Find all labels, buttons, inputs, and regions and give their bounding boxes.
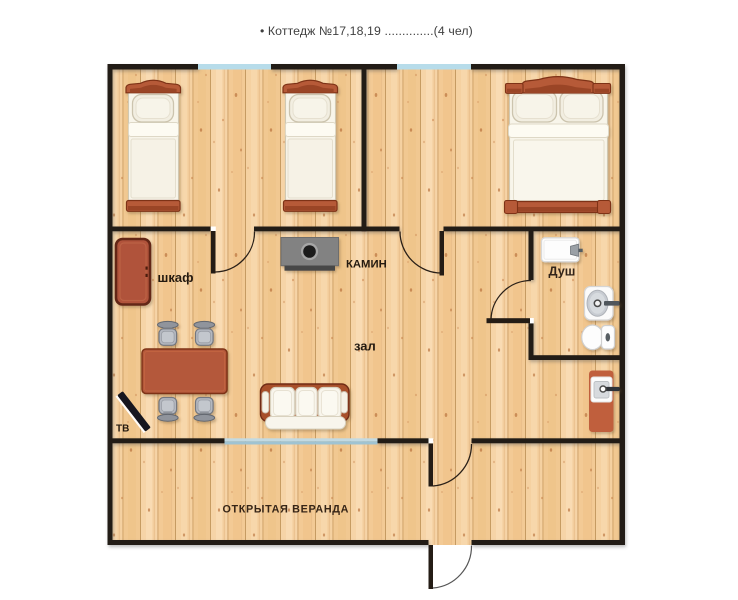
svg-text:КАМИН: КАМИН bbox=[346, 259, 387, 271]
svg-text:Душ: Душ bbox=[549, 265, 576, 279]
svg-text:ТВ: ТВ bbox=[116, 424, 129, 435]
svg-text:шкаф: шкаф bbox=[158, 270, 194, 285]
svg-text:ОТКРЫТАЯ ВЕРАНДА: ОТКРЫТАЯ ВЕРАНДА bbox=[223, 504, 350, 516]
svg-text:• Коттедж №17,18,19 ..........: • Коттедж №17,18,19 ..............(4 чел… bbox=[260, 24, 473, 38]
svg-text:зал: зал bbox=[354, 339, 376, 354]
